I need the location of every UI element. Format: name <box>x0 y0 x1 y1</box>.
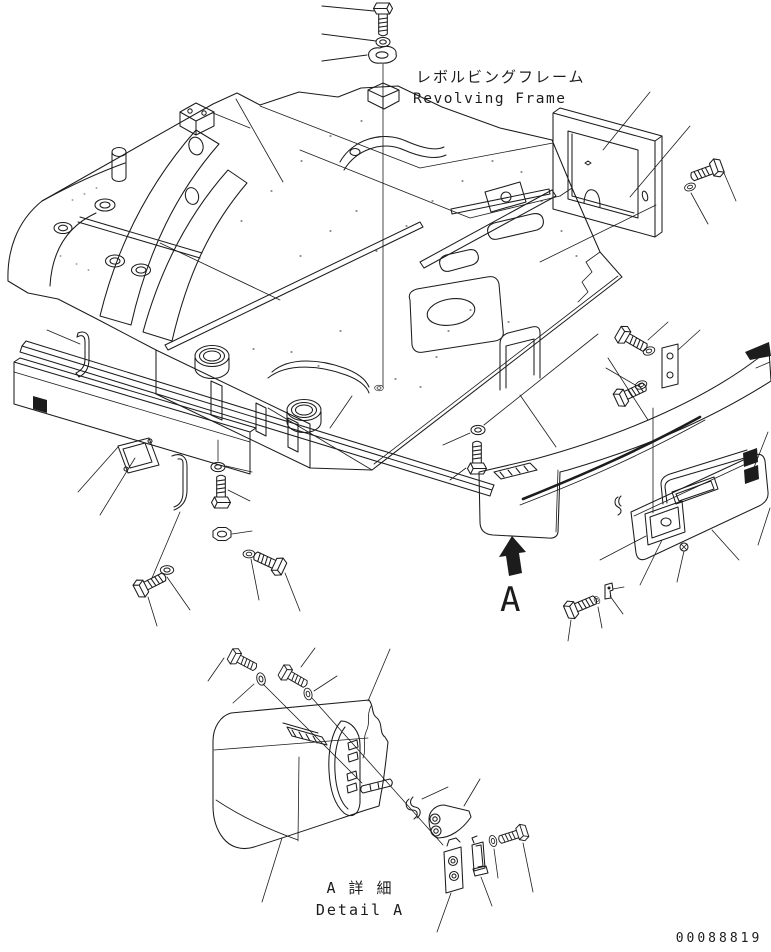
washer-icon <box>683 182 696 193</box>
bolt-icon <box>132 568 170 600</box>
cover-hole <box>585 161 591 165</box>
body-edges <box>214 738 368 841</box>
detail-caption-english: Detail A <box>316 901 404 919</box>
deck-plate-edges <box>160 106 560 300</box>
rear-cover-panel <box>540 92 736 262</box>
washer-icon <box>471 425 485 434</box>
deck-slot-1 <box>488 214 544 240</box>
bumper-top-strip <box>494 463 537 479</box>
ring-boss-large-2 <box>287 400 321 433</box>
washer-icon <box>376 37 390 46</box>
washer-icon <box>488 835 498 848</box>
clip-icon <box>605 583 613 599</box>
arrow-icon <box>499 536 526 576</box>
torn-edge <box>363 706 371 758</box>
bumper-outline <box>479 350 771 538</box>
arrow-fastener-set <box>562 583 624 641</box>
plug-hole <box>376 52 388 58</box>
washer-icon <box>255 672 266 686</box>
bolt-icon <box>212 475 231 508</box>
deck-rail-1 <box>165 222 423 350</box>
u-bracket <box>500 327 540 390</box>
right-fastener-set <box>606 322 700 409</box>
title-japanese: レボルビングフレーム <box>416 68 586 86</box>
bumper-end-cap <box>745 342 771 360</box>
ring-boss-large-1 <box>195 346 229 379</box>
leader-lines <box>322 6 376 61</box>
cover-body <box>14 358 256 474</box>
wing-holes <box>60 188 97 270</box>
washer-icon <box>211 462 225 471</box>
latch-assembly <box>645 501 685 545</box>
view-marker-label: A <box>500 580 520 620</box>
cylinder-boss <box>112 148 126 182</box>
cover-plate <box>553 108 662 237</box>
left-fastener-set <box>132 440 300 626</box>
deck-opening <box>409 277 503 353</box>
plug-icon <box>369 46 397 63</box>
leader-lines <box>568 587 624 641</box>
revolving-frame-parts-diagram: レボルビングフレーム Revolving Frame <box>0 0 771 952</box>
bolt-icon <box>468 441 487 474</box>
pin-icon <box>361 779 393 793</box>
side-cover-left <box>14 330 494 578</box>
revolving-frame-assembly <box>8 83 648 470</box>
bolt-icon <box>226 646 260 675</box>
cover-edge-strips <box>20 341 494 496</box>
leader-lines <box>606 322 700 386</box>
bolt-icon <box>277 663 311 693</box>
drawing-number: 00088819 <box>676 931 763 946</box>
deck-rail-3 <box>78 217 202 258</box>
wing-boss <box>95 199 115 211</box>
frame-edge-lines <box>268 276 618 470</box>
view-arrow: A <box>499 536 526 620</box>
bolt-icon <box>562 590 600 620</box>
bolt-icon <box>613 324 651 357</box>
leader-lines <box>148 466 300 626</box>
counterweight-bumper <box>479 342 771 538</box>
mount-hole <box>375 385 384 391</box>
boom-arm-1 <box>100 130 219 325</box>
counterweight-body <box>213 700 388 849</box>
deck-bolt-holes <box>241 121 577 387</box>
detail-caption-japanese: A 詳 細 <box>326 879 393 897</box>
nut-icon <box>213 528 231 541</box>
inner-face-panel <box>329 721 360 816</box>
cover-inner-panel <box>568 131 638 218</box>
top-fastener-set <box>322 3 396 391</box>
hinge-blocks <box>743 448 759 484</box>
wing-boss-2 <box>54 223 72 234</box>
curved-bracket-2 <box>172 455 187 510</box>
bolt-icon <box>688 157 725 186</box>
wing-lines <box>42 163 125 286</box>
bolt-icon <box>250 547 288 578</box>
handle-recess <box>672 477 718 504</box>
deck-cutout-curve <box>340 137 446 170</box>
parts-diagram-sheet: レボルビングフレーム Revolving Frame <box>0 0 771 952</box>
washer-icon <box>303 687 314 701</box>
bolt-icon <box>496 823 529 848</box>
mount-bracket <box>472 836 488 876</box>
frame-leaders <box>236 99 648 447</box>
clip-icon <box>615 496 621 515</box>
ring-boss-small-2 <box>132 264 151 276</box>
frame-outline <box>8 86 622 470</box>
deck-slot-2 <box>440 250 479 272</box>
handle-bar <box>661 450 748 504</box>
washer-icon <box>243 550 255 558</box>
boom-arm-2 <box>143 170 247 341</box>
bolt-icon <box>374 3 393 36</box>
bumper-dark-stripe <box>523 417 700 499</box>
strike-plate <box>662 344 678 388</box>
s-clip-icon <box>406 797 420 819</box>
arm-pin-hole-1 <box>187 135 205 156</box>
